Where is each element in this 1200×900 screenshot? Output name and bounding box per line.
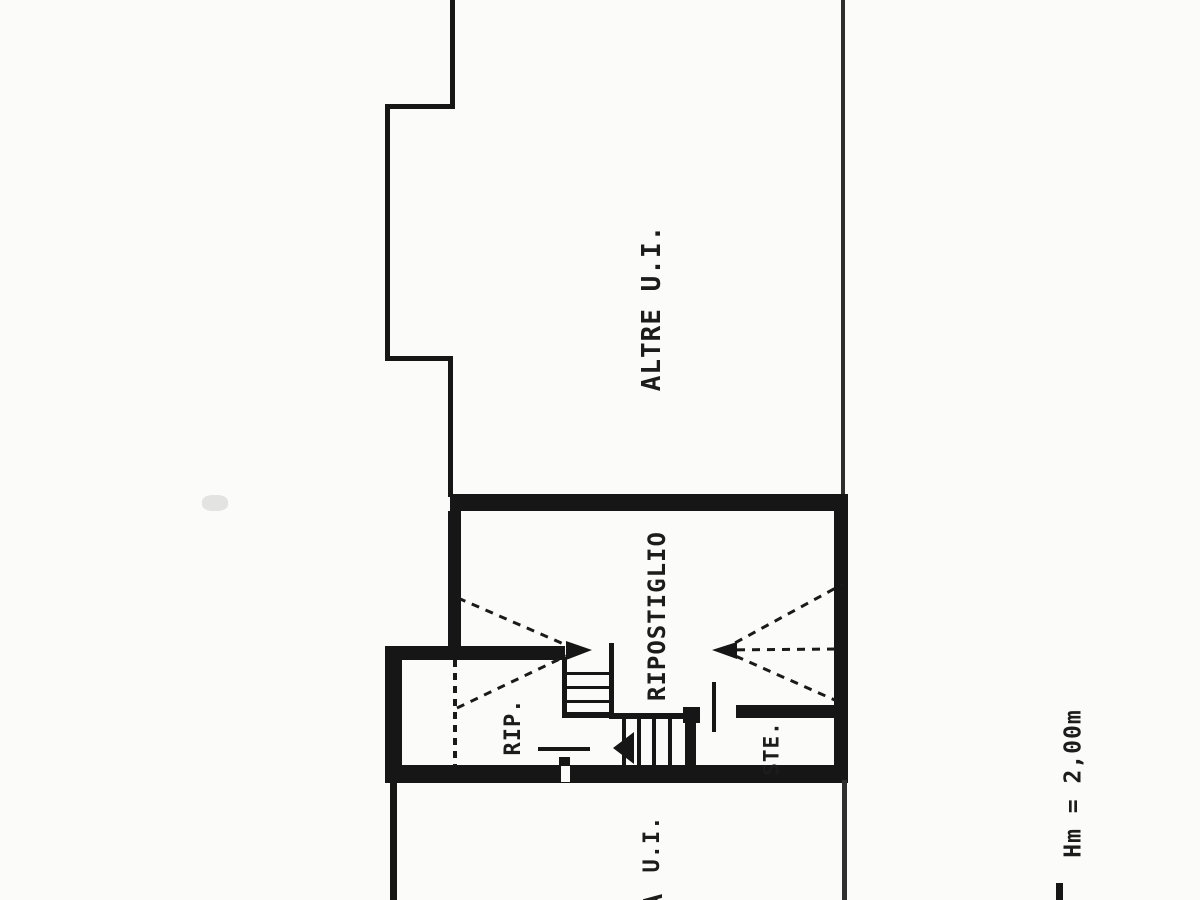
slope-arrow-left-icon <box>712 642 737 659</box>
room-label-ui: U.I. <box>642 794 664 894</box>
cut-off-letter: A <box>641 881 667 900</box>
slope-arrow-right-icon <box>566 641 592 660</box>
stair-direction-arrow-icon <box>613 732 634 764</box>
slope-dashed-line <box>722 584 843 650</box>
floor-plan-canvas: ALTRE U.I. RIPOSTIGLIO RIP. STE. U.I. Hm… <box>0 0 1200 900</box>
slope-dashed-line <box>722 649 840 650</box>
plan-annotations <box>0 0 1200 900</box>
slope-dashed-line <box>458 598 566 645</box>
room-label-ripostiglio: RIPOSTIGLIO <box>645 506 669 726</box>
height-annotation: Hm = 2,00m <box>1063 704 1086 864</box>
slope-dashed-line <box>722 650 837 701</box>
room-label-altre-ui: ALTRE U.I. <box>639 158 665 458</box>
room-label-ste: STE. <box>762 699 783 799</box>
room-label-rip: RIP. <box>503 677 525 777</box>
